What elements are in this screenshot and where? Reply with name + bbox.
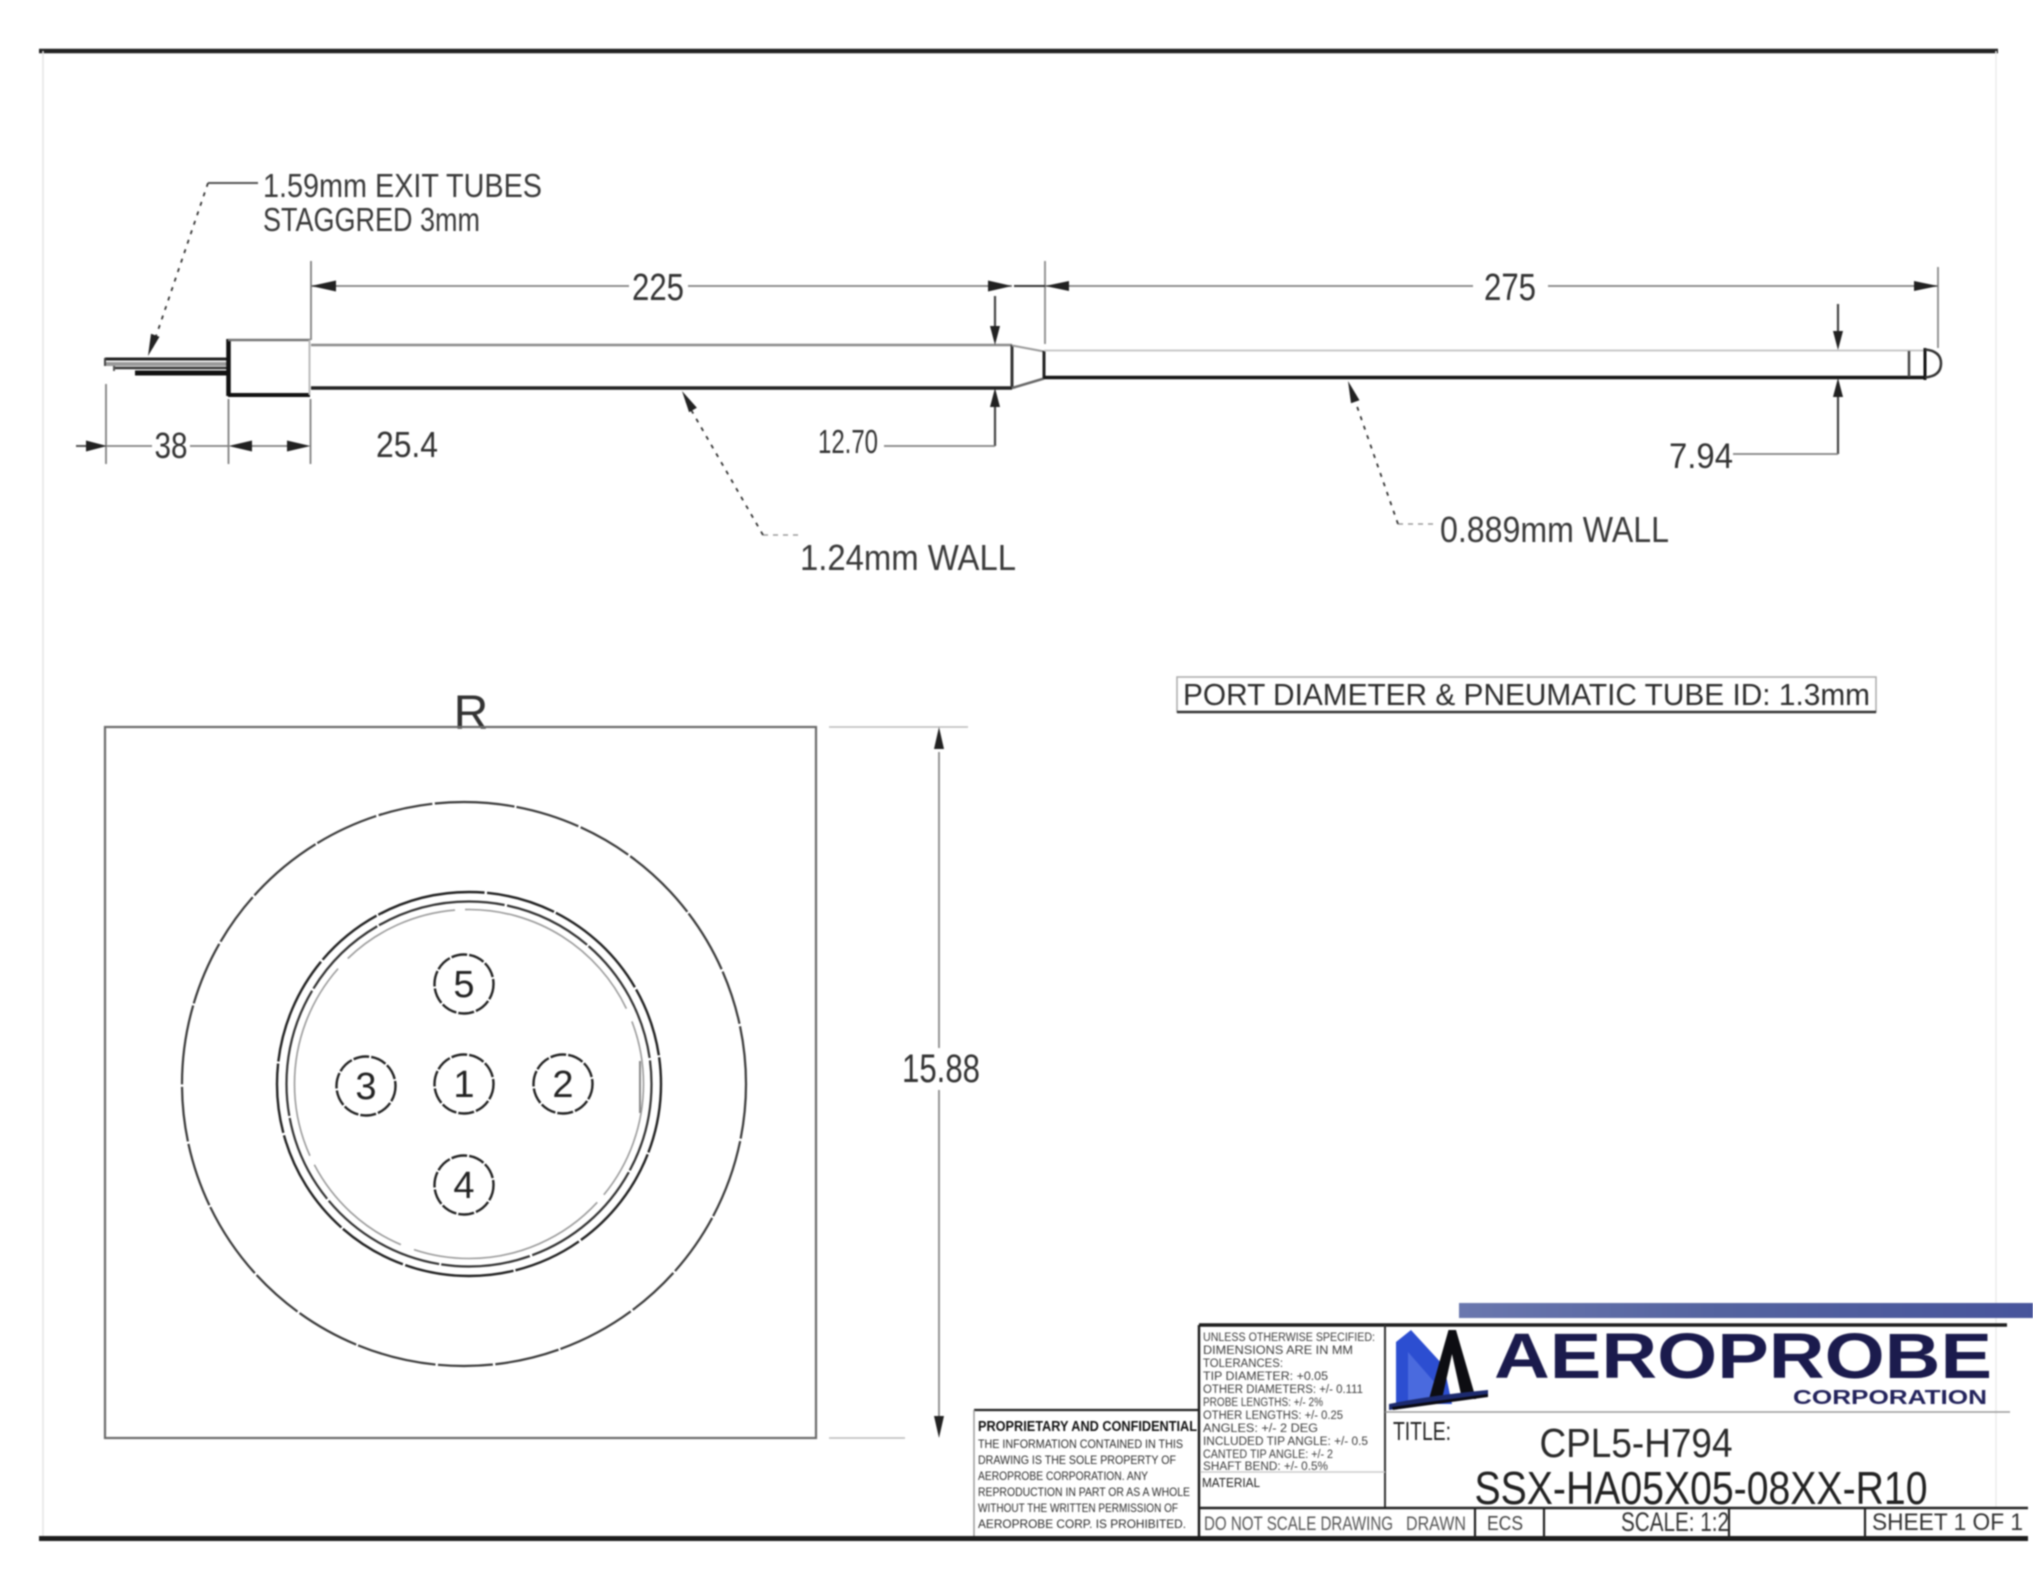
svg-text:INCLUDED TIP ANGLE: +/- 0.5: INCLUDED TIP ANGLE: +/- 0.5 xyxy=(1203,1436,1368,1448)
svg-text:SHAFT BEND: +/- 0.5%: SHAFT BEND: +/- 0.5% xyxy=(1203,1461,1328,1473)
svg-text:CANTED TIP ANGLE: +/- 2: CANTED TIP ANGLE: +/- 2 xyxy=(1203,1449,1333,1461)
svg-text:2: 2 xyxy=(552,1064,573,1106)
svg-text:1.24mm WALL: 1.24mm WALL xyxy=(800,537,1016,578)
svg-text:7.94: 7.94 xyxy=(1669,437,1733,476)
svg-text:38: 38 xyxy=(155,425,188,466)
svg-text:275: 275 xyxy=(1484,267,1536,309)
svg-text:CORPORATION: CORPORATION xyxy=(1793,1387,1987,1409)
svg-text:PROPRIETARY AND CONFIDENTIAL: PROPRIETARY AND CONFIDENTIAL xyxy=(978,1419,1197,1435)
svg-text:25.4: 25.4 xyxy=(376,424,438,465)
svg-text:CPL5-H794: CPL5-H794 xyxy=(1540,1420,1733,1466)
svg-text:STAGGRED 3mm: STAGGRED 3mm xyxy=(263,201,480,238)
svg-text:DRAWN: DRAWN xyxy=(1406,1514,1466,1535)
svg-text:12.70: 12.70 xyxy=(818,423,878,460)
svg-text:PORT DIAMETER & PNEUMATIC TUBE: PORT DIAMETER & PNEUMATIC TUBE ID: 1.3mm xyxy=(1183,677,1870,712)
svg-text:ANGLES: +/- 2 DEG: ANGLES: +/- 2 DEG xyxy=(1203,1423,1318,1435)
svg-text:1.59mm EXIT TUBES: 1.59mm EXIT TUBES xyxy=(263,167,542,204)
svg-text:REPRODUCTION IN PART OR AS A W: REPRODUCTION IN PART OR AS A WHOLE xyxy=(978,1485,1190,1499)
svg-text:5: 5 xyxy=(453,964,474,1006)
svg-text:DRAWING IS THE SOLE PROPERTY O: DRAWING IS THE SOLE PROPERTY OF xyxy=(978,1453,1176,1467)
svg-text:THE INFORMATION CONTAINED IN T: THE INFORMATION CONTAINED IN THIS xyxy=(978,1437,1183,1451)
svg-text:SCALE: 1:2: SCALE: 1:2 xyxy=(1621,1507,1729,1537)
svg-text:UNLESS OTHERWISE SPECIFIED:: UNLESS OTHERWISE SPECIFIED: xyxy=(1203,1332,1375,1344)
svg-text:TITLE:: TITLE: xyxy=(1393,1416,1451,1446)
svg-text:PROBE LENGTHS: +/- 2%: PROBE LENGTHS: +/- 2% xyxy=(1203,1397,1323,1409)
svg-text:R: R xyxy=(454,687,489,740)
svg-text:1: 1 xyxy=(453,1064,474,1106)
svg-text:0.889mm WALL: 0.889mm WALL xyxy=(1440,509,1669,550)
svg-text:225: 225 xyxy=(632,267,684,309)
svg-text:DIMENSIONS ARE IN MM: DIMENSIONS ARE IN MM xyxy=(1203,1345,1353,1357)
svg-text:AEROPROBE CORP. IS PROHIBITED.: AEROPROBE CORP. IS PROHIBITED. xyxy=(978,1517,1186,1531)
svg-text:WITHOUT THE WRITTEN PERMISSION: WITHOUT THE WRITTEN PERMISSION OF xyxy=(978,1501,1178,1515)
svg-text:TIP DIAMETER: +0.05: TIP DIAMETER: +0.05 xyxy=(1203,1371,1328,1383)
svg-text:MATERIAL: MATERIAL xyxy=(1202,1475,1260,1490)
svg-text:AEROPROBE: AEROPROBE xyxy=(1494,1320,1992,1392)
svg-text:3: 3 xyxy=(355,1066,376,1108)
svg-text:15.88: 15.88 xyxy=(902,1047,980,1091)
svg-text:TOLERANCES:: TOLERANCES: xyxy=(1203,1358,1283,1370)
svg-text:ECS: ECS xyxy=(1487,1513,1523,1535)
svg-text:DO NOT SCALE DRAWING: DO NOT SCALE DRAWING xyxy=(1204,1514,1393,1535)
svg-text:AEROPROBE CORPORATION. ANY: AEROPROBE CORPORATION. ANY xyxy=(978,1469,1148,1483)
svg-text:4: 4 xyxy=(453,1165,474,1207)
svg-text:OTHER LENGTHS: +/- 0.25: OTHER LENGTHS: +/- 0.25 xyxy=(1203,1410,1343,1422)
svg-text:SHEET 1 OF 1: SHEET 1 OF 1 xyxy=(1872,1509,2023,1536)
svg-text:OTHER DIAMETERS: +/- 0.111: OTHER DIAMETERS: +/- 0.111 xyxy=(1203,1384,1363,1396)
